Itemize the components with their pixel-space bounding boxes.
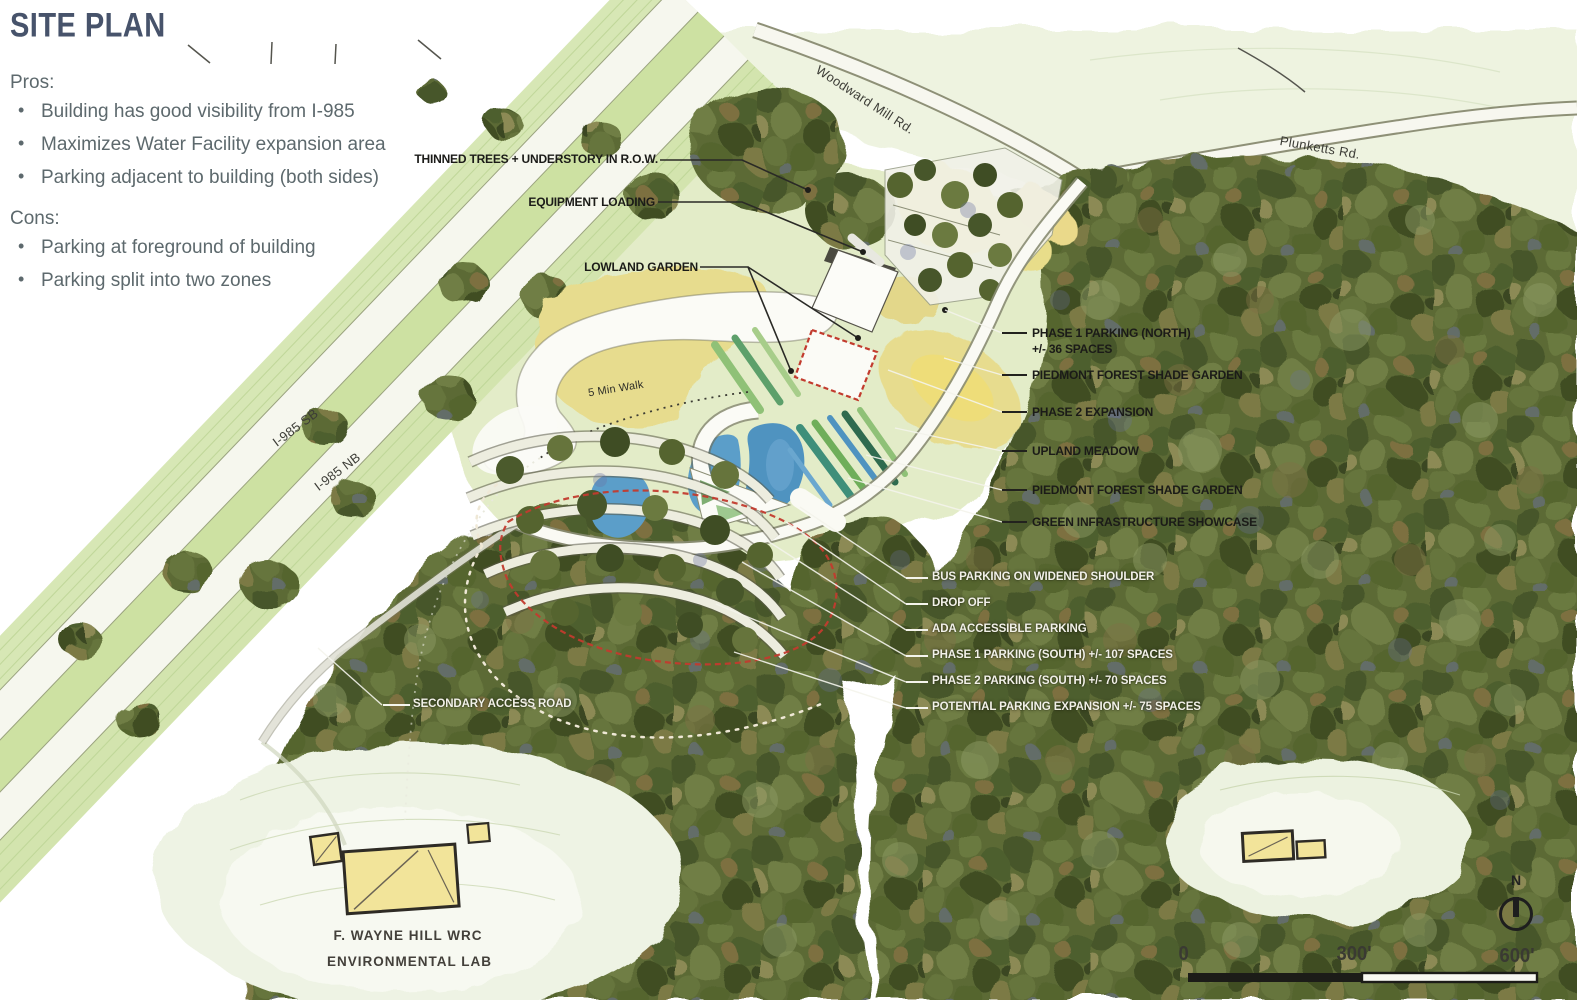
- page-title: SITE PLAN: [10, 4, 166, 46]
- scale-bar: [1188, 973, 1537, 982]
- callout-ada-parking: ADA ACCESSIBLE PARKING: [932, 623, 1087, 637]
- scale-zero: 0: [1178, 942, 1188, 966]
- callout-potential-expansion: POTENTIAL PARKING EXPANSION +/- 75 SPACE…: [932, 701, 1201, 715]
- site-plan-page: SITE PLAN Pros: Building has good visibi…: [0, 0, 1577, 1000]
- callout-phase1-south: PHASE 1 PARKING (SOUTH) +/- 107 SPACES: [932, 649, 1173, 663]
- pros-heading: Pros:: [10, 72, 54, 95]
- callout-piedmont-garden-2: PIEDMONT FOREST SHADE GARDEN: [1032, 483, 1242, 497]
- callout-piedmont-garden-1: PIEDMONT FOREST SHADE GARDEN: [1032, 368, 1242, 382]
- cons-item: Parking at foreground of building: [14, 237, 316, 260]
- pros-item: Maximizes Water Facility expansion area: [14, 134, 386, 157]
- pros-item: Parking adjacent to building (both sides…: [14, 167, 379, 190]
- pros-item: Building has good visibility from I-985: [14, 101, 355, 124]
- scale-mid: 300': [1337, 942, 1372, 966]
- callout-phase2-expansion: PHASE 2 EXPANSION: [1032, 405, 1153, 419]
- callout-green-infrastructure: GREEN INFRASTRUCTURE SHOWCASE: [1032, 515, 1257, 529]
- north-label: N: [1511, 872, 1521, 889]
- callout-thinned-trees: THINNED TREES + UNDERSTORY IN R.O.W.: [398, 152, 658, 166]
- facility-label-line2: ENVIRONMENTAL LAB: [327, 954, 489, 970]
- facility-label-line1: F. WAYNE HILL WRC: [327, 928, 489, 944]
- callout-upland-meadow: UPLAND MEADOW: [1032, 444, 1139, 458]
- scale-end: 600': [1500, 944, 1535, 968]
- callout-drop-off: DROP OFF: [932, 597, 990, 611]
- callout-phase1-north: PHASE 1 PARKING (NORTH): [1032, 326, 1191, 340]
- callout-phase2-south: PHASE 2 PARKING (SOUTH) +/- 70 SPACES: [932, 675, 1167, 689]
- callout-secondary-access: SECONDARY ACCESS ROAD: [413, 698, 572, 712]
- cons-item: Parking split into two zones: [14, 270, 271, 293]
- cons-heading: Cons:: [10, 208, 60, 231]
- callout-lowland-garden: LOWLAND GARDEN: [498, 260, 698, 274]
- callout-bus-parking: BUS PARKING ON WIDENED SHOULDER: [932, 571, 1154, 585]
- east-clearing: [1160, 758, 1470, 918]
- callout-phase1-north-spaces: +/- 36 SPACES: [1032, 342, 1112, 356]
- callout-equipment-loading: EQUIPMENT LOADING: [455, 195, 655, 209]
